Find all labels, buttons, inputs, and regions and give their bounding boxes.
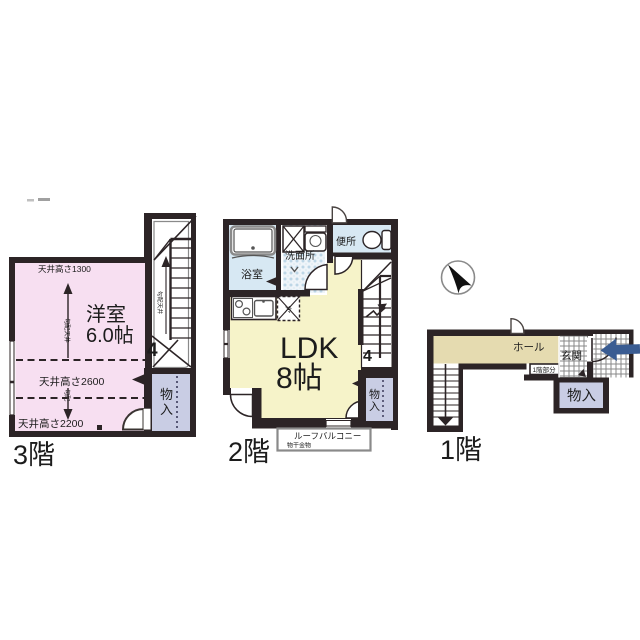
svg-text:1階部分: 1階部分: [533, 365, 557, 374]
svg-text:洋室: 洋室: [86, 303, 126, 326]
svg-text:天井高さ2200: 天井高さ2200: [18, 417, 84, 430]
svg-text:冷: 冷: [285, 305, 292, 314]
svg-text:ホール: ホール: [513, 342, 545, 354]
svg-text:便所: 便所: [336, 235, 356, 248]
svg-text:物干金物: 物干金物: [287, 442, 311, 450]
svg-text:8帖: 8帖: [276, 362, 323, 395]
svg-text:物: 物: [369, 387, 380, 401]
svg-text:勾配天井: 勾配天井: [156, 291, 164, 314]
svg-text:2階: 2階: [228, 437, 270, 467]
svg-text:4: 4: [363, 348, 372, 365]
svg-text:6.0帖: 6.0帖: [86, 324, 134, 347]
svg-text:ルーフバルコニー: ルーフバルコニー: [294, 431, 361, 441]
svg-text:勾配天井: 勾配天井: [63, 318, 71, 343]
svg-text:1階: 1階: [440, 435, 482, 465]
svg-text:玄関: 玄関: [561, 349, 582, 362]
svg-text:物入: 物入: [567, 388, 596, 405]
svg-text:3階: 3階: [13, 440, 55, 470]
svg-text:天井高さ1300: 天井高さ1300: [38, 264, 91, 274]
svg-text:洗面所: 洗面所: [285, 250, 315, 262]
svg-text:入: 入: [160, 402, 173, 417]
svg-text:物: 物: [160, 387, 173, 402]
svg-text:浴室: 浴室: [241, 267, 263, 281]
svg-text:天井高さ2600: 天井高さ2600: [39, 375, 105, 388]
svg-text:入: 入: [369, 401, 380, 413]
svg-text:勾配: 勾配: [63, 389, 71, 401]
svg-text:LDK: LDK: [280, 332, 338, 365]
svg-text:4: 4: [147, 340, 158, 361]
